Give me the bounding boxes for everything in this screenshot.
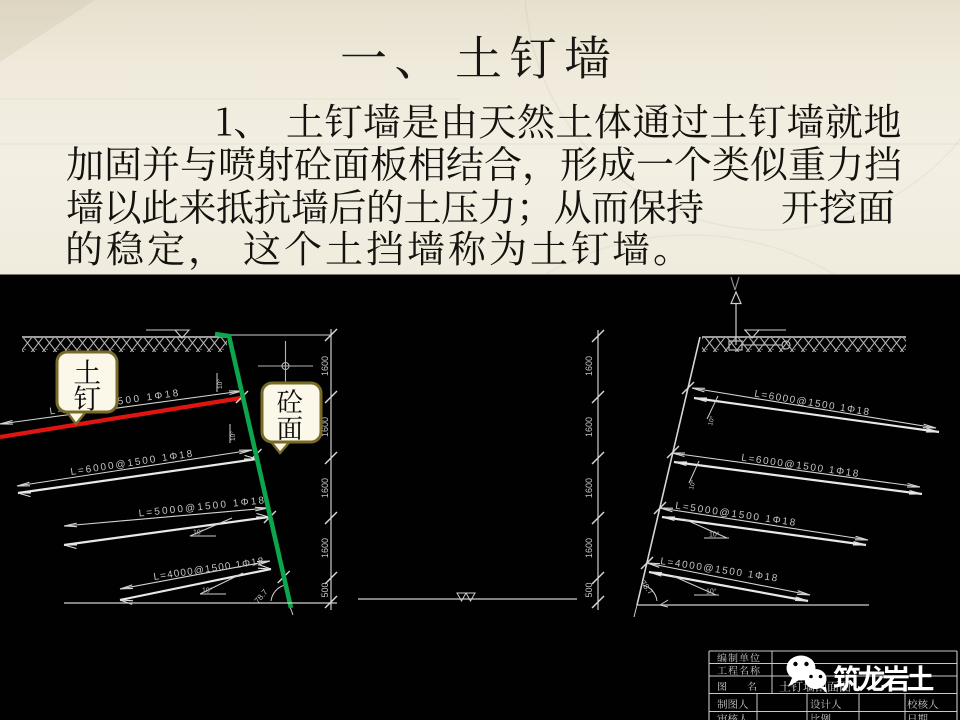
svg-text:1600: 1600 [584,356,594,376]
svg-text:10°: 10° [193,529,204,537]
svg-text:10°: 10° [709,531,720,539]
svg-text:10°: 10° [202,587,213,595]
svg-text:1600: 1600 [584,417,594,437]
svg-text:1600: 1600 [320,538,330,558]
svg-text:10°: 10° [216,379,224,389]
svg-text:1600: 1600 [320,478,330,498]
svg-text:1600: 1600 [584,478,594,498]
svg-text:500: 500 [320,582,330,597]
svg-text:10°: 10° [229,431,237,441]
svg-text:1600: 1600 [584,538,594,558]
svg-text:1600: 1600 [320,356,330,376]
svg-text:10°: 10° [706,588,717,596]
svg-text:500: 500 [584,582,594,597]
